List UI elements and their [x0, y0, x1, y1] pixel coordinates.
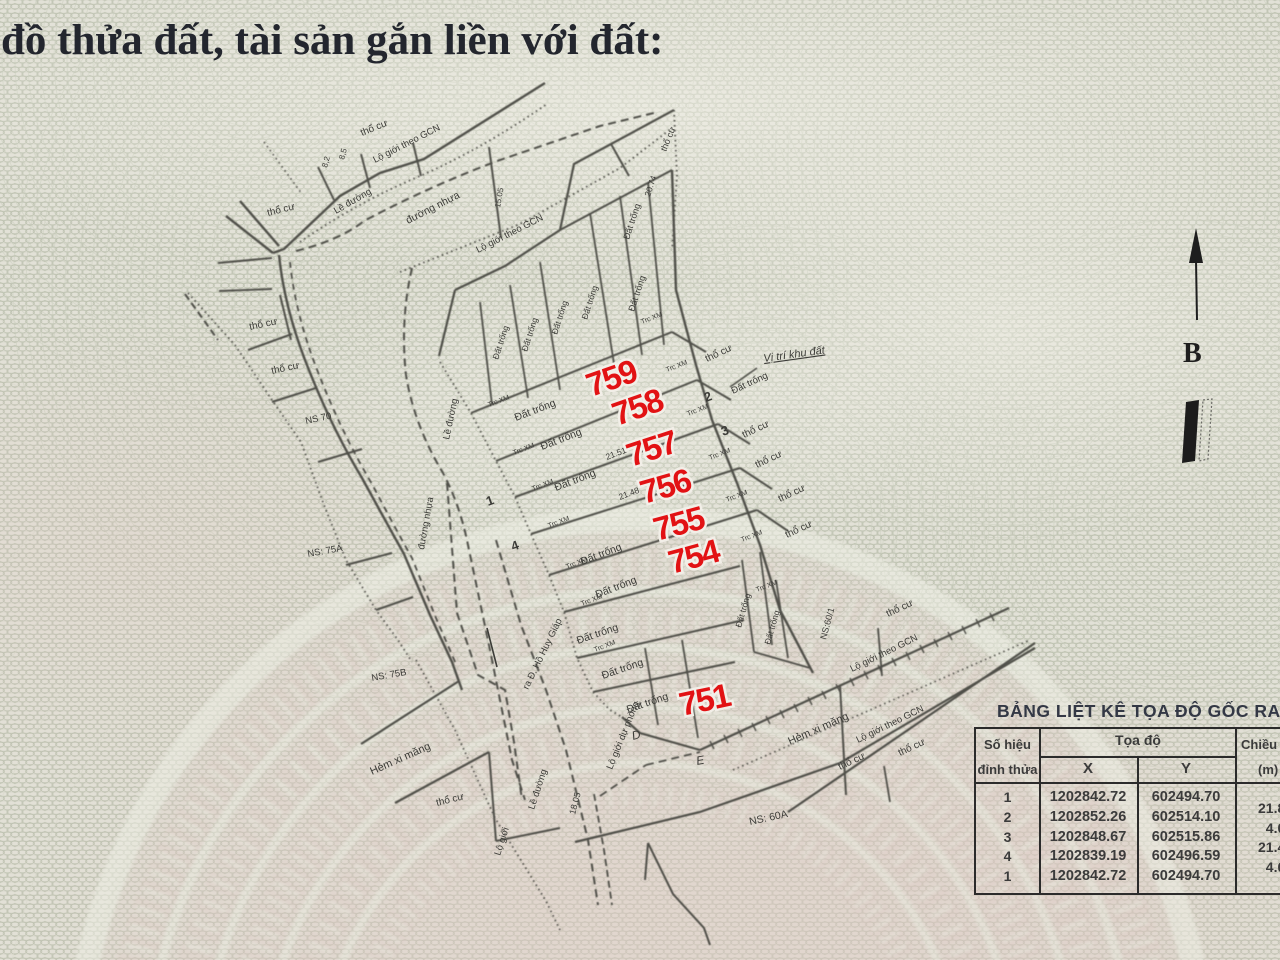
- svg-text:Hẻm xi măng: Hẻm xi măng: [368, 740, 432, 777]
- svg-text:D: D: [630, 727, 642, 743]
- svg-text:NS: 75B: NS: 75B: [371, 667, 408, 684]
- svg-text:4: 4: [509, 537, 522, 554]
- svg-text:Lộ giới theo GCN: Lộ giới theo GCN: [474, 212, 545, 255]
- svg-text:8,2: 8,2: [320, 155, 332, 169]
- svg-text:thổ cư: thổ cư: [753, 448, 784, 471]
- svg-text:Đất trống: Đất trống: [513, 397, 558, 424]
- svg-text:Vị trí khu đất: Vị trí khu đất: [763, 344, 827, 365]
- svg-text:thổ cư: thổ cư: [783, 518, 814, 541]
- svg-text:8,5: 8,5: [337, 147, 349, 161]
- svg-text:20.74: 20.74: [642, 174, 658, 198]
- svg-text:Đất trống: Đất trống: [519, 316, 539, 353]
- svg-text:B: B: [1183, 338, 1202, 369]
- svg-text:thổ cư: thổ cư: [359, 117, 390, 139]
- svg-text:NS: 75A: NS: 75A: [307, 543, 344, 560]
- svg-text:thổ cư: thổ cư: [248, 315, 279, 333]
- svg-text:Đất trống: Đất trống: [762, 609, 781, 646]
- svg-text:2: 2: [702, 388, 714, 405]
- svg-text:Trc XM: Trc XM: [686, 403, 709, 418]
- svg-text:thổ cư: thổ cư: [435, 790, 466, 809]
- svg-text:18,05: 18,05: [567, 791, 582, 815]
- svg-text:Trc XM: Trc XM: [531, 478, 554, 493]
- svg-text:thổ cư: thổ cư: [776, 482, 807, 505]
- svg-text:Trc XM: Trc XM: [640, 311, 663, 326]
- svg-text:NS:60/1: NS:60/1: [818, 607, 836, 641]
- svg-text:Đất trống: Đất trống: [490, 324, 510, 361]
- svg-text:Lề đường: Lề đường: [441, 398, 460, 441]
- svg-text:thổ cư: thổ cư: [266, 200, 297, 219]
- svg-text:Hẻm xi măng: Hẻm xi măng: [786, 710, 850, 747]
- svg-text:thổ cư: thổ cư: [896, 736, 927, 759]
- svg-text:Đất trống: Đất trống: [539, 426, 584, 453]
- svg-text:E: E: [695, 753, 706, 768]
- svg-text:đường nhựa: đường nhựa: [404, 189, 462, 227]
- svg-text:Đất trống: Đất trống: [549, 299, 569, 336]
- svg-text:thổ cư: thổ cư: [703, 342, 734, 365]
- svg-text:Đất trống: Đất trống: [600, 656, 645, 681]
- svg-text:Đất trống: Đất trống: [579, 284, 599, 321]
- svg-text:NS: 60A: NS: 60A: [748, 808, 789, 828]
- svg-text:NS 70: NS 70: [304, 411, 332, 427]
- svg-text:Lề đường: Lề đường: [332, 186, 374, 216]
- svg-text:751: 751: [676, 676, 734, 723]
- svg-text:thổ cư: thổ cư: [740, 418, 771, 441]
- svg-text:thổ cư: thổ cư: [884, 597, 915, 620]
- svg-text:Đất trống: Đất trống: [730, 370, 770, 396]
- svg-text:Đất trống: Đất trống: [625, 690, 670, 715]
- svg-text:Trc XM: Trc XM: [547, 515, 570, 530]
- svg-text:thổ cư: thổ cư: [270, 359, 301, 377]
- svg-text:Đất trống: Đất trống: [626, 274, 647, 312]
- svg-text:Lề đường: Lề đường: [526, 768, 549, 811]
- svg-text:đường nhựa: đường nhựa: [416, 495, 436, 550]
- svg-text:21.48: 21.48: [617, 485, 641, 502]
- svg-text:Đất trống: Đất trống: [553, 467, 598, 494]
- svg-text:Trc XM: Trc XM: [512, 442, 535, 457]
- svg-text:Trc XM: Trc XM: [740, 529, 763, 544]
- svg-text:Đất trống: Đất trống: [621, 202, 642, 240]
- svg-text:thổ cư: thổ cư: [659, 125, 678, 152]
- svg-text:Trc XM: Trc XM: [665, 359, 688, 374]
- svg-text:Trc XM: Trc XM: [565, 556, 588, 571]
- svg-text:1: 1: [484, 492, 496, 509]
